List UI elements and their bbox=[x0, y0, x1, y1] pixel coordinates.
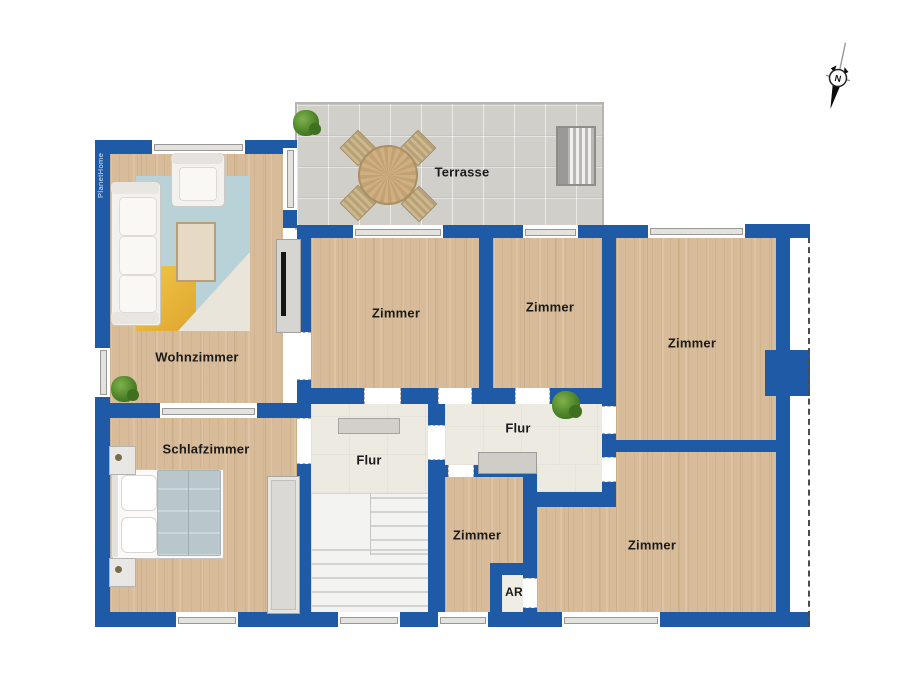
wall-flur-right-east-a bbox=[602, 237, 616, 406]
window-zimmer-right-top bbox=[648, 224, 745, 238]
window-schlafzimmer-bottom bbox=[176, 612, 238, 627]
wall-right-outer bbox=[776, 238, 790, 612]
door-flur-zimmer-right bbox=[602, 406, 616, 434]
wall-wohn-schlaf-a bbox=[95, 403, 160, 418]
wall-zimmer1-zimmer2 bbox=[479, 237, 493, 388]
room-label-wohnzimmer: Wohnzimmer bbox=[155, 350, 238, 365]
window-zimmer-br-bottom bbox=[562, 612, 660, 627]
door-zimmer2-flur-right bbox=[515, 388, 550, 404]
door-flur-zimmer-bottom-right bbox=[602, 457, 616, 482]
terrace-plant bbox=[293, 110, 319, 136]
window-zimmer-top-middle bbox=[523, 225, 578, 238]
tv-screen bbox=[281, 252, 286, 316]
hall-sideboard-right bbox=[478, 452, 537, 474]
wall-bottom-e bbox=[660, 612, 810, 627]
armchair-back bbox=[171, 153, 223, 164]
room-label-zimmer-top-left: Zimmer bbox=[372, 306, 420, 321]
wall-zimmer-row-bottom-b bbox=[399, 388, 438, 404]
room-label-schlafzimmer: Schlafzimmer bbox=[163, 442, 250, 457]
window-wohnzimmer-terrasse bbox=[283, 148, 297, 210]
room-label-zimmer-bottom-right: Zimmer bbox=[628, 538, 676, 553]
room-label-flur-right: Flur bbox=[505, 421, 530, 436]
north-compass-icon: N bbox=[812, 34, 864, 112]
door-flur-left-flur-right bbox=[428, 425, 445, 460]
window-stairs-bottom bbox=[338, 612, 400, 627]
wall-wohnzimmer-terrasse-a bbox=[283, 140, 297, 148]
door-zimmer1-flur-right bbox=[438, 388, 472, 404]
wall-flur-left-east-a bbox=[428, 404, 445, 425]
room-label-terrasse: Terrasse bbox=[435, 165, 490, 180]
door-flur-zimmer-mid bbox=[448, 465, 474, 477]
wall-zimmer-row-bottom-a bbox=[311, 388, 364, 404]
wall-flur-left-east-b bbox=[428, 458, 445, 612]
wall-bottom-b bbox=[238, 612, 338, 627]
armchair-cushion bbox=[179, 167, 217, 201]
room-label-abstellraum: AR bbox=[505, 585, 523, 599]
room-label-zimmer-bottom-middle: Zimmer bbox=[453, 528, 501, 543]
room-flur-right-ext-floor bbox=[537, 465, 602, 492]
wall-bottom-a bbox=[95, 612, 176, 627]
hall-plant bbox=[552, 391, 580, 419]
bed-blanket bbox=[157, 470, 221, 556]
wall-zimmer-row-bottom-c bbox=[470, 388, 515, 404]
window-wohn-schlaf bbox=[160, 403, 257, 418]
room-label-flur-left: Flur bbox=[356, 453, 381, 468]
wall-top-row-a bbox=[297, 225, 353, 238]
window-zimmer-mid-bottom bbox=[438, 612, 488, 627]
sofa-armrest-top bbox=[111, 182, 159, 194]
wall-bottom-c bbox=[400, 612, 438, 627]
nightstand-lamp-top bbox=[115, 454, 122, 461]
tv-board bbox=[276, 239, 301, 333]
chimney-block bbox=[765, 350, 810, 396]
room-zimmer-bottom-right-floor bbox=[616, 452, 776, 612]
bed-pillow-2 bbox=[121, 517, 157, 553]
terrace-awning bbox=[556, 126, 596, 186]
watermark-planethome: PlanetHome bbox=[96, 151, 109, 199]
door-ar bbox=[523, 578, 537, 608]
door-schlafzimmer-flur bbox=[297, 418, 311, 464]
coffee-table bbox=[176, 222, 216, 282]
nightstand-bottom bbox=[109, 558, 136, 587]
window-wohnzimmer-top bbox=[152, 140, 245, 154]
wall-ar-left bbox=[490, 563, 502, 612]
bed-pillow-1 bbox=[121, 475, 157, 511]
wall-flur-ext-bottom bbox=[537, 492, 616, 507]
bed-blanket-seam bbox=[188, 470, 189, 556]
wall-flur-right-east-b bbox=[602, 432, 616, 457]
wall-top-row-d bbox=[745, 224, 810, 238]
terrace-table bbox=[358, 145, 418, 205]
sofa-armrest-bottom bbox=[111, 312, 159, 324]
sofa-cushion-1 bbox=[119, 197, 157, 236]
boundary-dashed-line bbox=[808, 237, 810, 627]
bed-headboard bbox=[112, 469, 118, 557]
door-zimmer1-flur-left bbox=[364, 388, 401, 404]
wall-wohn-schlaf-b bbox=[257, 403, 311, 418]
nightstand-top bbox=[109, 446, 136, 475]
sofa-cushion-3 bbox=[119, 275, 157, 313]
room-label-zimmer-right: Zimmer bbox=[668, 336, 716, 351]
sofa-cushion-2 bbox=[119, 236, 157, 275]
room-zimmer-bottom-right-floor-ext bbox=[537, 507, 616, 612]
floorplan-canvas: PlanetHome N Terrasse Wohnzimmer Zimmer … bbox=[0, 0, 907, 680]
door-wohnzimmer-zimmer1 bbox=[297, 332, 311, 380]
living-room-plant bbox=[111, 376, 137, 402]
room-label-zimmer-top-middle: Zimmer bbox=[526, 300, 574, 315]
wall-wohnzimmer-terrasse-b bbox=[283, 210, 297, 228]
window-wohnzimmer-left bbox=[95, 348, 110, 397]
nightstand-lamp-bottom bbox=[115, 566, 122, 573]
hall-shelf-left bbox=[338, 418, 400, 434]
wall-zimmer3-bottom bbox=[616, 440, 776, 452]
window-zimmer-top-left bbox=[353, 225, 443, 238]
wardrobe bbox=[267, 476, 300, 614]
wall-bottom-d bbox=[488, 612, 562, 627]
staircase-divider bbox=[370, 493, 371, 555]
